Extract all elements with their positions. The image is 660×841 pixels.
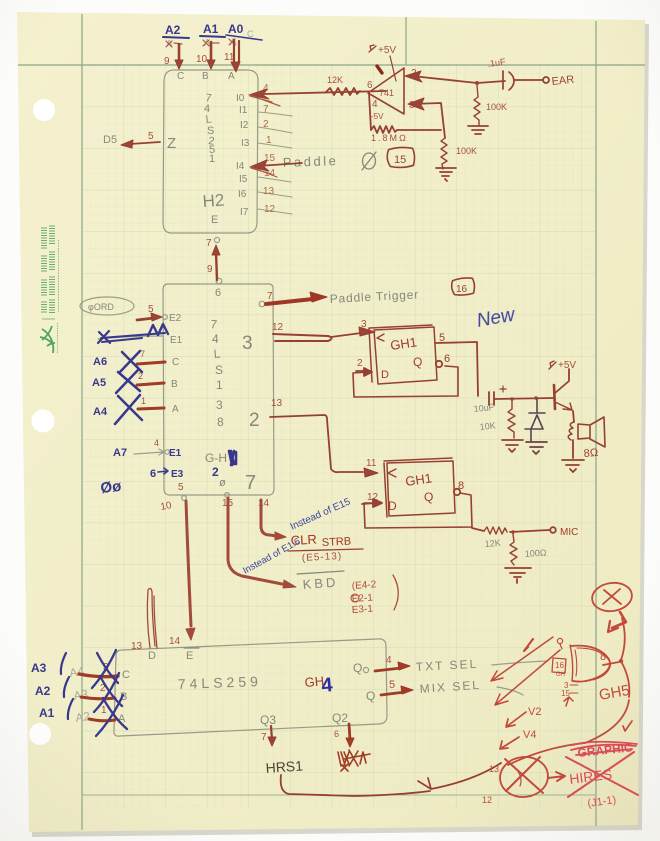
svg-text:B: B — [202, 71, 209, 82]
svg-text:H2: H2 — [202, 191, 225, 211]
svg-text:D: D — [148, 650, 156, 662]
svg-text:8: 8 — [458, 480, 464, 492]
svg-text:3: 3 — [242, 333, 253, 354]
svg-text:12: 12 — [264, 204, 276, 215]
svg-text:7: 7 — [263, 104, 269, 115]
svg-text:(E4-2: (E4-2 — [351, 579, 377, 592]
svg-text:1: 1 — [141, 396, 146, 406]
svg-text:7: 7 — [267, 291, 273, 302]
svg-text:I0: I0 — [236, 93, 245, 104]
svg-text:A1: A1 — [39, 706, 55, 720]
svg-text:6: 6 — [215, 287, 221, 299]
svg-text:A3: A3 — [72, 687, 89, 703]
svg-text:D: D — [388, 499, 397, 513]
svg-text:14: 14 — [169, 636, 181, 647]
svg-text:12K: 12K — [484, 538, 501, 549]
svg-text:GH: GH — [556, 672, 565, 678]
svg-text:ø: ø — [219, 477, 226, 489]
svg-text:A2: A2 — [74, 709, 91, 725]
svg-text:13: 13 — [263, 186, 275, 197]
svg-text:100K: 100K — [456, 146, 477, 156]
svg-text:+5V: +5V — [378, 45, 396, 56]
svg-text:1: 1 — [266, 135, 272, 146]
svg-text:7: 7 — [245, 472, 256, 494]
svg-text:A6: A6 — [93, 356, 107, 368]
svg-text:-5V: -5V — [371, 112, 384, 121]
svg-text:A5: A5 — [92, 377, 106, 389]
svg-text:E: E — [186, 650, 193, 662]
svg-text:EAR: EAR — [551, 74, 575, 88]
svg-text:11: 11 — [366, 458, 377, 469]
svg-text:1.8MΩ: 1.8MΩ — [371, 133, 408, 143]
svg-text:C: C — [172, 357, 179, 368]
svg-text:9: 9 — [207, 264, 213, 275]
svg-text:16: 16 — [555, 661, 564, 670]
svg-text:I2: I2 — [240, 120, 249, 131]
svg-text:2: 2 — [263, 119, 269, 130]
svg-text:Q: Q — [413, 355, 422, 369]
svg-text:I4: I4 — [236, 161, 245, 172]
svg-text:I3: I3 — [241, 138, 250, 149]
svg-text:STRB: STRB — [322, 535, 352, 549]
svg-text:I6: I6 — [238, 189, 247, 200]
svg-text:I7: I7 — [240, 207, 249, 218]
svg-text:Paddle: Paddle — [283, 153, 339, 170]
svg-text:C: C — [122, 669, 130, 681]
svg-text:KBD: KBD — [302, 575, 339, 592]
svg-text:2: 2 — [249, 410, 260, 431]
svg-text:10: 10 — [196, 54, 208, 65]
svg-text:15: 15 — [394, 154, 406, 166]
svg-text:A4: A4 — [93, 406, 108, 418]
svg-text:E3-1: E3-1 — [351, 604, 373, 616]
svg-text:16: 16 — [456, 284, 468, 295]
svg-text:5: 5 — [389, 679, 395, 691]
svg-text:6: 6 — [334, 729, 339, 739]
svg-text:4: 4 — [386, 655, 392, 666]
svg-text:74LS259: 74LS259 — [178, 673, 263, 692]
svg-text:8: 8 — [217, 415, 224, 429]
svg-text:Q: Q — [366, 689, 375, 703]
svg-text:13: 13 — [489, 764, 499, 774]
svg-text:E: E — [211, 214, 218, 226]
svg-text:G-H: G-H — [205, 451, 227, 465]
svg-text:A0: A0 — [228, 22, 244, 36]
svg-text:I1: I1 — [239, 105, 248, 116]
svg-text:Z: Z — [167, 135, 176, 152]
svg-text:4: 4 — [372, 99, 378, 110]
svg-text:V2: V2 — [528, 706, 541, 718]
svg-text:13: 13 — [271, 398, 283, 409]
svg-text:6: 6 — [444, 353, 450, 365]
svg-text:A3: A3 — [31, 661, 47, 675]
svg-text:E1: E1 — [170, 335, 183, 346]
svg-text:100K: 100K — [486, 102, 507, 112]
svg-text:2: 2 — [357, 358, 363, 369]
svg-text:3: 3 — [216, 398, 223, 412]
svg-text:1: 1 — [216, 378, 223, 392]
svg-text:D5: D5 — [103, 134, 117, 146]
svg-text:1: 1 — [101, 705, 107, 716]
svg-text:12: 12 — [482, 795, 492, 805]
svg-text:φORD: φORD — [88, 302, 114, 312]
svg-text:(E5-13): (E5-13) — [302, 551, 343, 564]
svg-text:2: 2 — [212, 465, 219, 479]
svg-text:I5: I5 — [239, 174, 248, 185]
svg-text:1: 1 — [209, 153, 215, 165]
svg-text:4: 4 — [212, 332, 219, 346]
svg-text:A2: A2 — [35, 684, 51, 698]
svg-text:MIC: MIC — [560, 527, 578, 538]
svg-text:Q: Q — [353, 661, 362, 675]
svg-text:7: 7 — [261, 732, 267, 743]
svg-text:741: 741 — [379, 88, 394, 98]
svg-text:A: A — [172, 404, 179, 415]
svg-text:5: 5 — [148, 131, 154, 142]
svg-text:10K: 10K — [479, 420, 496, 432]
svg-text:3: 3 — [361, 319, 367, 330]
svg-text:A: A — [228, 71, 235, 82]
svg-text:S: S — [215, 363, 223, 377]
svg-text:6: 6 — [150, 468, 156, 480]
svg-text:D: D — [381, 369, 389, 381]
svg-text:E3: E3 — [171, 469, 184, 480]
svg-text:12: 12 — [272, 322, 284, 333]
svg-text:Øø: Øø — [100, 478, 123, 497]
svg-text:6: 6 — [367, 80, 373, 91]
svg-text:HRS1: HRS1 — [265, 757, 304, 776]
svg-text:12K: 12K — [327, 75, 343, 85]
svg-text:Q2: Q2 — [332, 711, 348, 725]
svg-text:A7: A7 — [113, 447, 127, 459]
svg-text:B: B — [171, 379, 178, 390]
svg-text:5: 5 — [178, 482, 184, 493]
svg-text:Q3: Q3 — [260, 713, 276, 727]
svg-text:Q: Q — [424, 490, 433, 504]
svg-text:E1: E1 — [169, 448, 182, 459]
svg-text:A2: A2 — [165, 23, 181, 37]
svg-text:13: 13 — [131, 641, 143, 652]
svg-text:4: 4 — [154, 438, 159, 448]
svg-text:8Ω: 8Ω — [583, 447, 599, 460]
svg-text:100Ω: 100Ω — [524, 547, 547, 559]
svg-text:E2: E2 — [169, 313, 182, 324]
svg-text:+5V: +5V — [558, 360, 576, 371]
svg-text:A1: A1 — [203, 22, 219, 36]
svg-text:A4: A4 — [68, 664, 85, 680]
svg-text:V4: V4 — [523, 729, 536, 741]
svg-text:8: 8 — [600, 651, 606, 663]
svg-text:7: 7 — [206, 238, 212, 249]
svg-text:9: 9 — [164, 56, 170, 67]
svg-text:C: C — [177, 71, 184, 82]
